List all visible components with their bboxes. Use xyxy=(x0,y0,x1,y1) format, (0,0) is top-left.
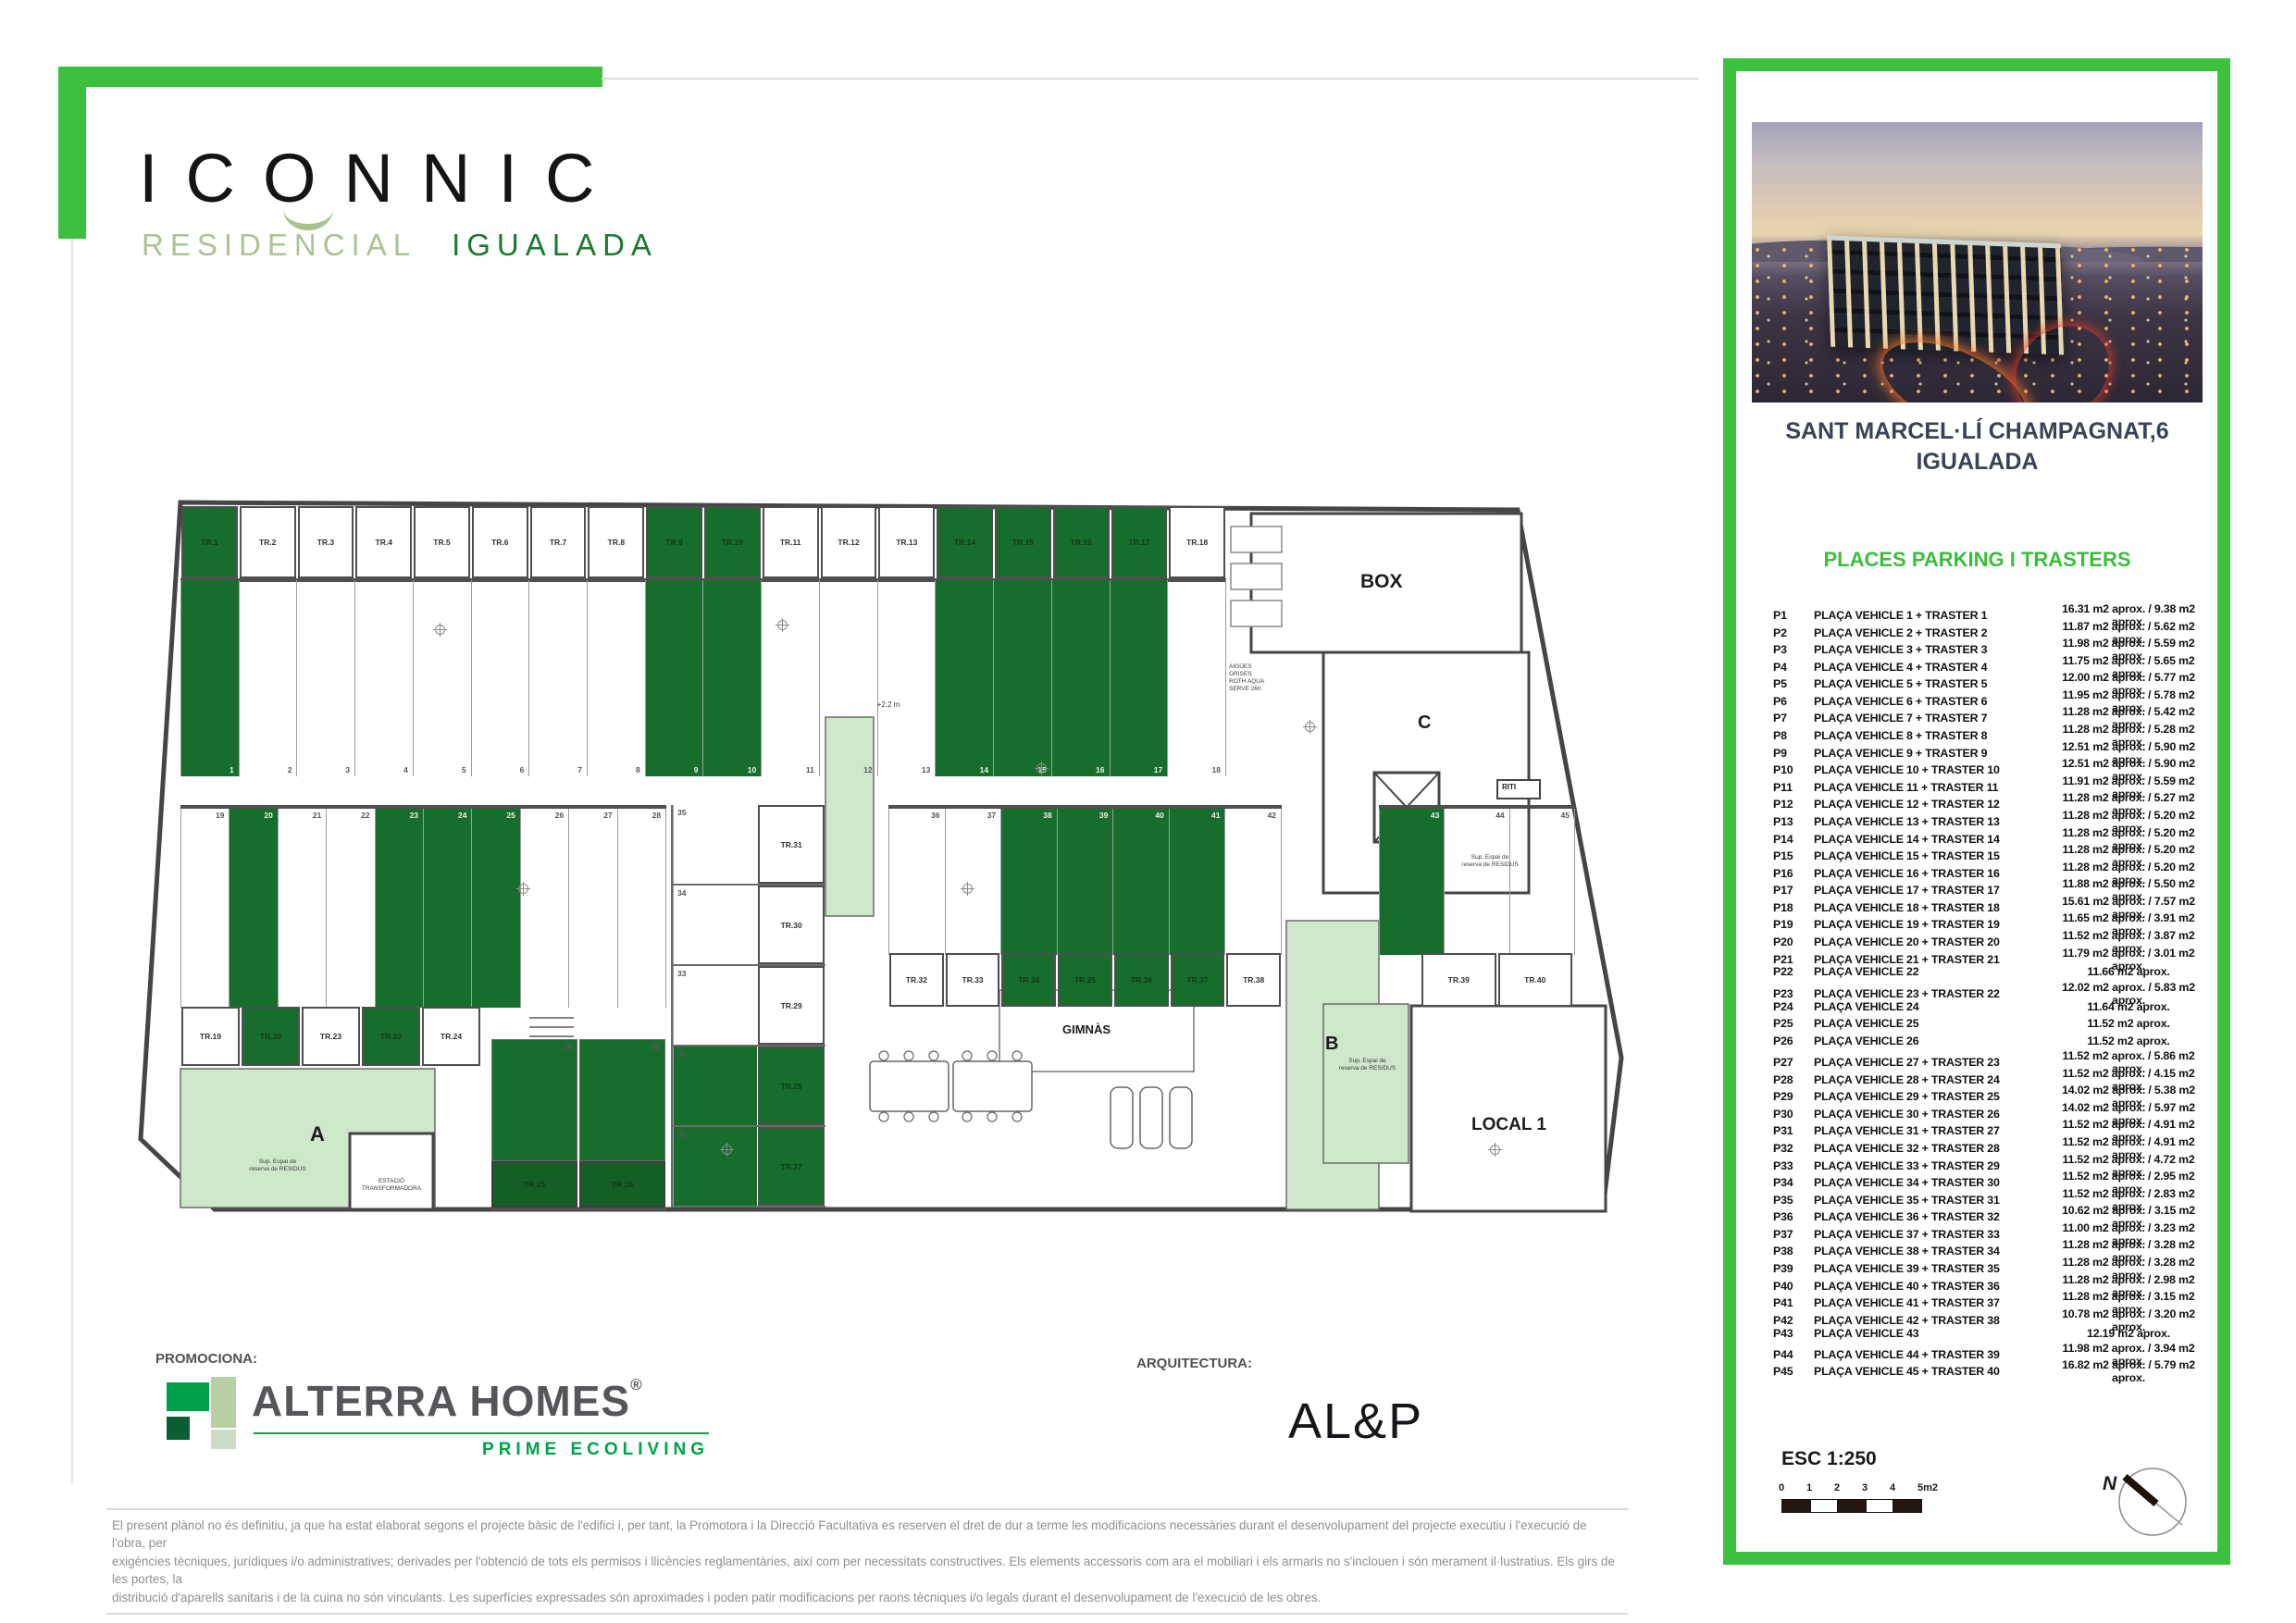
spot-ref: P45 xyxy=(1773,1365,1814,1378)
riti-label: RITI xyxy=(1502,783,1516,791)
parking-stall: 15 xyxy=(993,580,1051,776)
spot-ref: P41 xyxy=(1773,1296,1814,1309)
trasters-right2-row: TR.39TR.40 xyxy=(1421,953,1573,1007)
traster-label: TR.2 xyxy=(259,538,276,547)
spot-area: 16.82 m2 aprox. / 5.79 m2 aprox. xyxy=(2045,1358,2212,1384)
disclaimer-line1: El present plànol no és definitiu, ja qu… xyxy=(112,1517,1622,1553)
traster-label: TR.40 xyxy=(1524,975,1545,985)
stall-number: 40 xyxy=(1155,811,1163,820)
spot-description: PLAÇA VEHICLE 17 + TRASTER 17 xyxy=(1814,884,2045,897)
parking-stall: 6 xyxy=(471,580,529,776)
spot-description: PLAÇA VEHICLE 20 + TRASTER 20 xyxy=(1814,935,2045,948)
spot-description: PLAÇA VEHICLE 41 + TRASTER 37 xyxy=(1814,1296,2045,1309)
traster-cell: TR.36 xyxy=(1114,953,1169,1007)
spot-description: PLAÇA VEHICLE 22 xyxy=(1814,965,2045,978)
spot-description: PLAÇA VEHICLE 44 + TRASTER 39 xyxy=(1814,1348,2045,1361)
architect-label: ARQUITECTURA: xyxy=(1136,1356,1252,1371)
reserva-c-note: Sup. Espai de reserva de RESIDUS xyxy=(1444,854,1536,869)
stall-number: 37 xyxy=(987,811,996,820)
traster-cell: TR.37 xyxy=(1171,953,1225,1007)
parking-stall: 9 xyxy=(645,580,703,776)
spot-description: PLAÇA VEHICLE 6 + TRASTER 6 xyxy=(1814,695,2045,708)
stack-row: 31 TR.27 xyxy=(673,1127,825,1208)
stall-number: 33 xyxy=(677,969,686,1043)
community-table-2 xyxy=(953,1061,1032,1111)
spot-row: P12 PLAÇA VEHICLE 12 + TRASTER 12 11.28 … xyxy=(1773,791,2212,809)
traster-cell: TR.27 xyxy=(758,1127,825,1206)
stall-number: 43 xyxy=(1431,811,1439,820)
stall-number: 20 xyxy=(264,811,272,820)
spot-ref: P12 xyxy=(1773,798,1814,811)
spot-row: P10 PLAÇA VEHICLE 10 + TRASTER 10 12.51 … xyxy=(1773,757,2212,774)
spot-description: PLAÇA VEHICLE 24 xyxy=(1814,1000,2045,1013)
spot-ref: P7 xyxy=(1773,712,1814,725)
spot-ref: P28 xyxy=(1773,1073,1814,1086)
spot-ref: P39 xyxy=(1773,1262,1814,1275)
spot-description: PLAÇA VEHICLE 33 + TRASTER 29 xyxy=(1814,1159,2045,1172)
spot-description: PLAÇA VEHICLE 35 + TRASTER 31 xyxy=(1814,1194,2045,1207)
reserva-a-note: Sup. Espai de reserva de RESIDUS xyxy=(213,1158,342,1173)
alterra-logo-mark xyxy=(167,1377,241,1449)
traster-label: TR.11 xyxy=(780,538,801,547)
stalls-top-row: 123456789101112131415161718 xyxy=(180,580,1226,776)
list-title: PLACES PARKING I TRASTERS xyxy=(1752,548,2203,572)
stall-number: 26 xyxy=(555,811,564,820)
survey-marker-icon xyxy=(777,620,788,630)
spot-ref: P11 xyxy=(1773,781,1814,794)
brand-tagline: RESIDENCIALIGUALADA xyxy=(142,228,658,263)
traster-cell: TR.22 xyxy=(362,1007,420,1066)
architect-logo: AL&P xyxy=(1288,1393,1423,1450)
stall-number: 21 xyxy=(313,811,321,820)
parking-stall: 17 xyxy=(1110,580,1168,776)
scale-tick: 4 xyxy=(1890,1482,1895,1493)
parking-stall: 31 xyxy=(673,1127,757,1206)
traster-cell: TR.2 xyxy=(240,506,296,578)
spot-ref: P31 xyxy=(1773,1124,1814,1137)
traster-label: TR.30 xyxy=(781,921,802,930)
spot-row: P21 PLAÇA VEHICLE 21 + TRASTER 21 11.79 … xyxy=(1773,947,2212,964)
spot-description: PLAÇA VEHICLE 16 + TRASTER 16 xyxy=(1814,867,2045,880)
stall-with-traster: 29 TR.25 xyxy=(491,1039,577,1208)
spot-ref: P27 xyxy=(1773,1056,1814,1069)
spot-ref: P35 xyxy=(1773,1194,1814,1207)
logo-square-green xyxy=(167,1382,209,1411)
community-table-1 xyxy=(870,1061,949,1111)
spot-ref: P4 xyxy=(1773,661,1814,674)
traster-label: TR.26 xyxy=(612,1180,633,1189)
parking-stall: 35 xyxy=(673,805,757,884)
traster-cell: TR.32 xyxy=(889,953,944,1007)
survey-marker-icon xyxy=(1036,763,1047,774)
stall-number: 42 xyxy=(1268,811,1276,820)
spot-description: PLAÇA VEHICLE 25 xyxy=(1814,1017,2045,1030)
spot-row: P31 PLAÇA VEHICLE 31 + TRASTER 27 11.52 … xyxy=(1773,1118,2212,1135)
traster-cell: TR.5 xyxy=(414,506,470,578)
stall-number: 10 xyxy=(748,765,756,774)
box-label: BOX xyxy=(1360,571,1403,593)
spot-row: P30 PLAÇA VEHICLE 30 + TRASTER 26 14.02 … xyxy=(1773,1101,2212,1119)
traster-cell: TR.18 xyxy=(1169,506,1225,578)
stall-number: 11 xyxy=(806,765,814,774)
survey-marker-icon xyxy=(962,884,973,894)
disclaimer-line3: distribució d'aparells sanitaris i de la… xyxy=(112,1589,1622,1606)
parking-stall: 44 xyxy=(1444,809,1508,955)
spot-row: P34 PLAÇA VEHICLE 34 + TRASTER 30 11.52 … xyxy=(1773,1170,2212,1187)
spot-description: PLAÇA VEHICLE 11 + TRASTER 11 xyxy=(1814,781,2045,794)
survey-marker-icon xyxy=(435,625,445,635)
traster-label: TR.37 xyxy=(1186,975,1208,985)
stalls-bottom-pair: 29 TR.25 30 TR.26 xyxy=(490,1039,666,1211)
parking-stall: 39 xyxy=(1057,809,1113,955)
traster-cell: TR.34 xyxy=(1001,953,1056,1007)
parking-spot-list: P1 PLAÇA VEHICLE 1 + TRASTER 1 16.31 m2 … xyxy=(1773,602,2212,1376)
scale-tick: 2 xyxy=(1834,1482,1840,1493)
spot-row: P29 PLAÇA VEHICLE 29 + TRASTER 25 14.02 … xyxy=(1773,1084,2212,1101)
logo-square-dark xyxy=(167,1417,190,1440)
traster-label: TR.38 xyxy=(1243,975,1264,985)
traster-cell: TR.11 xyxy=(763,506,819,578)
stall-number: 24 xyxy=(458,811,466,820)
core-c-label: C xyxy=(1418,712,1431,734)
traster-cell: TR.3 xyxy=(298,506,354,578)
address-line1: SANT MARCEL·LÍ CHAMPAGNAT,6 xyxy=(1752,416,2203,447)
disclaimer-line2: exigències tècniques, jurídiques i/o adm… xyxy=(112,1553,1622,1589)
traster-cell: TR.31 xyxy=(758,805,825,884)
spot-row: P1 PLAÇA VEHICLE 1 + TRASTER 1 16.31 m2 … xyxy=(1773,602,2212,620)
parking-stall: 4 xyxy=(354,580,413,776)
spot-row: P5 PLAÇA VEHICLE 5 + TRASTER 5 12.00 m2 … xyxy=(1773,671,2212,688)
traster-label: TR.27 xyxy=(781,1162,802,1171)
legal-disclaimer: El present plànol no és definitiu, ja qu… xyxy=(106,1508,1628,1615)
spot-ref: P13 xyxy=(1773,815,1814,828)
traster-label: TR.34 xyxy=(1018,975,1039,985)
traster-label: TR.32 xyxy=(906,975,927,985)
parking-stall: 22 xyxy=(326,809,374,1008)
spot-ref: P20 xyxy=(1773,935,1814,948)
spot-description: PLAÇA VEHICLE 30 + TRASTER 26 xyxy=(1814,1108,2045,1121)
local1-room xyxy=(1411,1006,1606,1211)
spot-ref: P25 xyxy=(1773,1017,1814,1030)
spot-ref: P10 xyxy=(1773,763,1814,776)
spot-ref: P40 xyxy=(1773,1280,1814,1293)
spot-description: PLAÇA VEHICLE 19 + TRASTER 19 xyxy=(1814,918,2045,931)
spot-description: PLAÇA VEHICLE 39 + TRASTER 35 xyxy=(1814,1262,2045,1275)
parking-stall: 20 xyxy=(229,809,277,1008)
gimnas-label: GIMNÀS xyxy=(1062,1022,1111,1036)
parking-stall: 24 xyxy=(423,809,471,1008)
stall-number: 5 xyxy=(462,765,466,774)
spot-description: PLAÇA VEHICLE 10 + TRASTER 10 xyxy=(1814,763,2045,776)
spot-row: P19 PLAÇA VEHICLE 19 + TRASTER 19 11.65 … xyxy=(1773,911,2212,929)
box-door-1 xyxy=(1231,527,1282,552)
reserva-b-note: Sup. Espai de reserva de RESIDUS xyxy=(1328,1058,1407,1072)
spot-ref: P1 xyxy=(1773,609,1814,622)
spot-description: PLAÇA VEHICLE 9 + TRASTER 9 xyxy=(1814,747,2045,760)
aigues-note: AIGÜES GRISES ROTH AQUA SERVE 260 xyxy=(1229,663,1285,694)
parking-stall: 42 xyxy=(1224,809,1282,955)
stall-number: 3 xyxy=(345,765,350,774)
stall-number: 35 xyxy=(677,808,686,882)
stall-number: 29 xyxy=(564,1043,572,1052)
spot-ref: P36 xyxy=(1773,1210,1814,1223)
spot-ref: P21 xyxy=(1773,953,1814,966)
spot-description: PLAÇA VEHICLE 1 + TRASTER 1 xyxy=(1814,609,2045,622)
spot-row: P35 PLAÇA VEHICLE 35 + TRASTER 31 11.52 … xyxy=(1773,1187,2212,1205)
traster-cell: TR.26 xyxy=(579,1161,665,1208)
stall-number: 16 xyxy=(1096,765,1104,774)
parking-stall: 3 xyxy=(296,580,354,776)
spot-ref: P14 xyxy=(1773,833,1814,846)
spot-row: P9 PLAÇA VEHICLE 9 + TRASTER 9 12.51 m2 … xyxy=(1773,740,2212,758)
traster-cell: TR.40 xyxy=(1498,953,1573,1007)
traster-label: TR.4 xyxy=(376,538,392,547)
traster-cell: TR.29 xyxy=(758,966,825,1045)
traster-cell: TR.35 xyxy=(1058,953,1112,1007)
traster-label: TR.8 xyxy=(608,538,625,547)
stall-number: 31 xyxy=(677,1130,686,1204)
parking-stall: 25 xyxy=(471,809,519,1008)
parking-stall: 38 xyxy=(1000,809,1057,955)
parking-stall: 34 xyxy=(673,886,757,964)
traster-label: TR.10 xyxy=(722,538,743,547)
spot-description: PLAÇA VEHICLE 14 + TRASTER 14 xyxy=(1814,833,2045,846)
promoter-label: PROMOCIONA: xyxy=(155,1351,257,1367)
spot-description: PLAÇA VEHICLE 36 + TRASTER 32 xyxy=(1814,1210,2045,1223)
parking-stall: 19 xyxy=(180,809,229,1008)
trasters-top-row: TR.1TR.2TR.3TR.4TR.5TR.6TR.7TR.8TR.9TR.1… xyxy=(180,506,1226,582)
spot-row: P20 PLAÇA VEHICLE 20 + TRASTER 20 11.52 … xyxy=(1773,929,2212,947)
spot-description: PLAÇA VEHICLE 12 + TRASTER 12 xyxy=(1814,798,2045,811)
alterra-tagline: PRIME ECOLIVING xyxy=(254,1440,709,1460)
scale-tick: 0 xyxy=(1779,1482,1784,1493)
survey-marker-icon xyxy=(722,1145,732,1155)
spot-description: PLAÇA VEHICLE 23 + TRASTER 22 xyxy=(1814,987,2045,1000)
north-letter: N xyxy=(2103,1473,2116,1495)
traster-label: TR.14 xyxy=(954,538,975,547)
spot-ref: P37 xyxy=(1773,1228,1814,1241)
scale-bar-segments xyxy=(1781,1499,1922,1513)
registered-mark: ® xyxy=(630,1376,643,1394)
stall-number: 27 xyxy=(603,811,612,820)
reserve-area-right xyxy=(1323,1004,1409,1163)
spot-row: P14 PLAÇA VEHICLE 14 + TRASTER 14 11.28 … xyxy=(1773,826,2212,844)
stalls-stack: 35 TR.31 34 TR.30 33 TR.29 32 TR.28 31 T… xyxy=(671,805,825,1208)
traster-cell: TR.30 xyxy=(758,886,825,964)
traster-label: TR.39 xyxy=(1448,975,1470,985)
stall-number: 14 xyxy=(980,765,988,774)
spot-area: 11.52 m2 aprox. xyxy=(2045,1035,2212,1047)
survey-marker-icon xyxy=(1305,722,1315,732)
spot-row: P37 PLAÇA VEHICLE 37 + TRASTER 33 11.00 … xyxy=(1773,1221,2212,1239)
box-door-2 xyxy=(1231,564,1282,589)
spot-ref: P9 xyxy=(1773,747,1814,760)
stall-number: 4 xyxy=(403,765,408,774)
parking-stall: 13 xyxy=(877,580,936,776)
traster-label: TR.12 xyxy=(838,538,859,547)
parking-stall: 10 xyxy=(702,580,761,776)
stall-number: 8 xyxy=(636,765,640,774)
traster-label: TR.6 xyxy=(491,538,508,547)
left-rule xyxy=(71,239,73,1483)
stall-number: 30 xyxy=(652,1043,660,1052)
spot-description: PLAÇA VEHICLE 34 + TRASTER 30 xyxy=(1814,1176,2045,1189)
spot-description: PLAÇA VEHICLE 3 + TRASTER 3 xyxy=(1814,643,2045,656)
traster-cell: TR.1 xyxy=(181,506,238,578)
promoter-name: ALTERRA HOMES xyxy=(252,1377,630,1425)
stall-number: 2 xyxy=(288,765,292,774)
traster-label: TR.23 xyxy=(320,1032,341,1041)
spot-ref: P18 xyxy=(1773,901,1814,914)
alterra-underline xyxy=(254,1432,709,1434)
spot-ref: P26 xyxy=(1773,1035,1814,1047)
parking-stall: 21 xyxy=(278,809,326,1008)
logo-square-pale xyxy=(211,1430,236,1449)
stalls-mid-right-row: 36373839404142 xyxy=(888,805,1282,955)
parking-stall: 28 xyxy=(617,809,666,1008)
spot-description: PLAÇA VEHICLE 43 xyxy=(1814,1327,2045,1340)
spot-row: P44 PLAÇA VEHICLE 44 + TRASTER 39 11.98 … xyxy=(1773,1342,2212,1359)
spot-ref: P16 xyxy=(1773,867,1814,880)
spot-ref: P19 xyxy=(1773,918,1814,931)
garage-floor-plan: TR.1TR.2TR.3TR.4TR.5TR.6TR.7TR.8TR.9TR.1… xyxy=(130,486,1638,1226)
spot-row: P40 PLAÇA VEHICLE 40 + TRASTER 36 11.28 … xyxy=(1773,1273,2212,1291)
spot-description: PLAÇA VEHICLE 28 + TRASTER 24 xyxy=(1814,1073,2045,1086)
parking-stall: 36 xyxy=(888,809,945,955)
traster-label: TR.13 xyxy=(896,538,917,547)
traster-label: TR.35 xyxy=(1074,975,1096,985)
stalls-far-right-row: 434445 xyxy=(1379,805,1575,955)
traster-label: TR.3 xyxy=(317,538,334,547)
photo-main-building xyxy=(1827,236,2065,355)
stall-number: 38 xyxy=(1043,811,1051,820)
stall-number: 18 xyxy=(1211,765,1220,774)
scale-bar: 0 1 2 3 4 5m2 xyxy=(1781,1482,1957,1525)
spot-description: PLAÇA VEHICLE 27 + TRASTER 23 xyxy=(1814,1056,2045,1069)
traster-label: TR.28 xyxy=(781,1082,802,1091)
spot-row: P26 PLAÇA VEHICLE 26 11.52 m2 aprox. xyxy=(1773,1032,2212,1049)
traster-cell: TR.13 xyxy=(878,506,935,578)
spot-ref: P17 xyxy=(1773,884,1814,897)
spot-description: PLAÇA VEHICLE 32 + TRASTER 28 xyxy=(1814,1142,2045,1155)
spot-description: PLAÇA VEHICLE 2 + TRASTER 2 xyxy=(1814,626,2045,639)
spot-description: PLAÇA VEHICLE 29 + TRASTER 25 xyxy=(1814,1090,2045,1103)
parking-stall: 45 xyxy=(1509,809,1575,955)
traster-cell: TR.23 xyxy=(302,1007,360,1066)
brand-tagline-residencial: RESIDENCIAL xyxy=(142,228,416,262)
parking-stall: 23 xyxy=(375,809,423,1008)
spot-ref: P24 xyxy=(1773,1000,1814,1013)
top-rule xyxy=(602,78,1698,80)
traster-cell: TR.10 xyxy=(704,506,761,578)
traster-cell: TR.15 xyxy=(995,506,1051,578)
parking-stall: 14 xyxy=(935,580,993,776)
traster-label: TR.7 xyxy=(550,538,566,547)
parking-stall: 27 xyxy=(568,809,616,1008)
traster-cell: TR.17 xyxy=(1111,506,1168,578)
traster-cell: TR.25 xyxy=(491,1161,577,1208)
corner-bracket-vertical xyxy=(58,67,86,239)
box-door-3 xyxy=(1231,601,1282,626)
traster-cell: TR.7 xyxy=(530,506,587,578)
spot-row: P22 PLAÇA VEHICLE 22 11.66 m2 aprox. xyxy=(1773,963,2212,981)
parking-stall: 1 xyxy=(180,580,239,776)
project-address: SANT MARCEL·LÍ CHAMPAGNAT,6 IGUALADA xyxy=(1752,416,2203,477)
spot-row: P45 PLAÇA VEHICLE 45 + TRASTER 40 16.82 … xyxy=(1773,1358,2212,1376)
spot-ref: P32 xyxy=(1773,1142,1814,1155)
spot-row: P32 PLAÇA VEHICLE 32 + TRASTER 28 11.52 … xyxy=(1773,1135,2212,1153)
traster-cell: TR.4 xyxy=(355,506,412,578)
stack-row: 35 TR.31 xyxy=(673,805,825,886)
spot-description: PLAÇA VEHICLE 40 + TRASTER 36 xyxy=(1814,1280,2045,1293)
spot-description: PLAÇA VEHICLE 31 + TRASTER 27 xyxy=(1814,1124,2045,1137)
traster-label: TR.9 xyxy=(665,538,682,547)
survey-marker-icon xyxy=(518,884,528,894)
parking-stall: 29 xyxy=(491,1039,577,1161)
address-line2: IGUALADA xyxy=(1752,447,2203,477)
traster-cell: TR.6 xyxy=(472,506,528,578)
parking-stall: 43 xyxy=(1379,809,1444,955)
brand-tagline-igualada: IGUALADA xyxy=(452,228,658,262)
spot-ref: P2 xyxy=(1773,626,1814,639)
stall-number: 6 xyxy=(520,765,525,774)
spot-row: P16 PLAÇA VEHICLE 16 + TRASTER 16 11.28 … xyxy=(1773,861,2212,878)
spot-area: 11.64 m2 aprox. xyxy=(2045,1000,2212,1013)
traster-cell: TR.20 xyxy=(242,1007,300,1066)
spot-description: PLAÇA VEHICLE 18 + TRASTER 18 xyxy=(1814,901,2045,914)
logo-square-sage xyxy=(211,1377,236,1428)
scale-tick: 1 xyxy=(1806,1482,1812,1493)
spot-ref: P8 xyxy=(1773,729,1814,742)
stall-number: 41 xyxy=(1211,811,1220,820)
spot-ref: P15 xyxy=(1773,849,1814,862)
spot-row: P3 PLAÇA VEHICLE 3 + TRASTER 3 11.98 m2 … xyxy=(1773,637,2212,654)
spot-row: P38 PLAÇA VEHICLE 38 + TRASTER 34 11.28 … xyxy=(1773,1238,2212,1256)
traster-cell: TR.8 xyxy=(588,506,644,578)
stall-number: 1 xyxy=(230,765,234,774)
spot-ref: P38 xyxy=(1773,1245,1814,1258)
core-a-label: A xyxy=(310,1122,325,1146)
spot-ref: P30 xyxy=(1773,1108,1814,1121)
parking-stall: 7 xyxy=(528,580,587,776)
parking-stall: 41 xyxy=(1169,809,1225,955)
local1-label: LOCAL 1 xyxy=(1471,1115,1546,1135)
scale-label: ESC 1:250 xyxy=(1781,1448,1877,1470)
spot-description: PLAÇA VEHICLE 21 + TRASTER 21 xyxy=(1814,953,2045,966)
stall-number: 12 xyxy=(863,765,872,774)
spot-row: P2 PLAÇA VEHICLE 2 + TRASTER 2 11.87 m2 … xyxy=(1773,620,2212,638)
spot-row: P25 PLAÇA VEHICLE 25 11.52 m2 aprox. xyxy=(1773,1015,2212,1033)
loungers xyxy=(1111,1087,1192,1148)
stalls-mid-left-row: 19202122232425262728 xyxy=(180,805,666,1008)
stall-with-traster: 30 TR.26 xyxy=(579,1039,665,1208)
stall-number: 17 xyxy=(1154,765,1162,774)
traster-cell: TR.12 xyxy=(821,506,877,578)
traster-label: TR.25 xyxy=(524,1180,545,1189)
traster-cell: TR.16 xyxy=(1053,506,1110,578)
parking-stall: 18 xyxy=(1167,580,1226,776)
spot-ref: P43 xyxy=(1773,1327,1814,1340)
parking-stall: 16 xyxy=(1051,580,1110,776)
traster-label: TR.15 xyxy=(1012,538,1034,547)
parking-stall: 11 xyxy=(761,580,819,776)
spot-description: PLAÇA VEHICLE 26 xyxy=(1814,1035,2045,1047)
north-arrow: N xyxy=(2099,1451,2201,1548)
spot-row: P39 PLAÇA VEHICLE 39 + TRASTER 35 11.28 … xyxy=(1773,1256,2212,1273)
parking-stall: 8 xyxy=(587,580,645,776)
stall-number: 32 xyxy=(677,1049,686,1123)
spot-ref: P3 xyxy=(1773,643,1814,656)
